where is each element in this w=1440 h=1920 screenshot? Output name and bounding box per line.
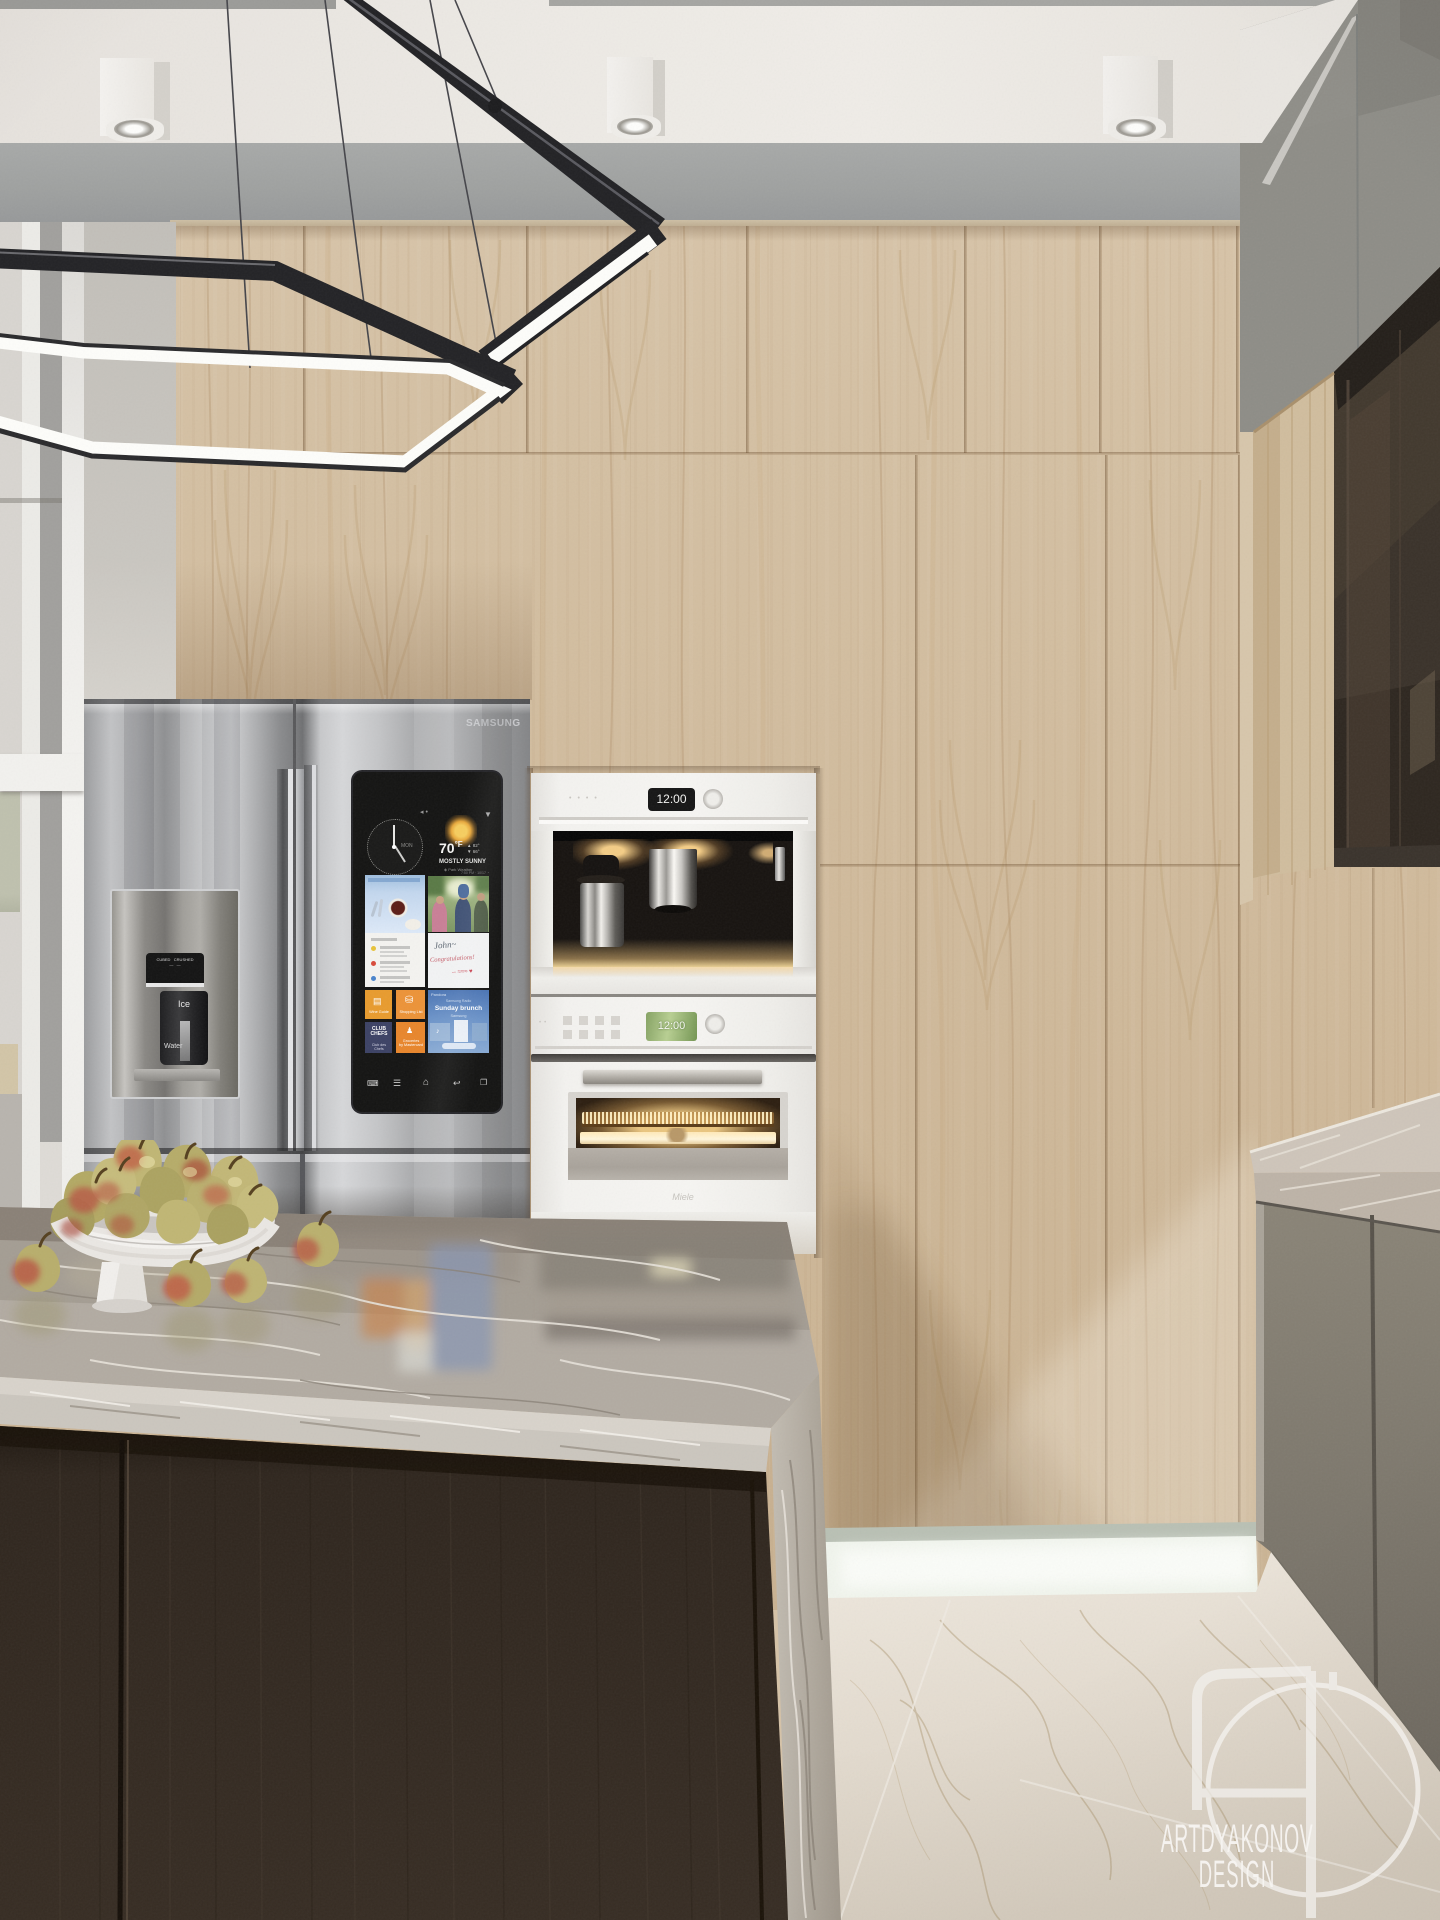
svg-text:DESIGN: DESIGN <box>1199 1854 1275 1896</box>
